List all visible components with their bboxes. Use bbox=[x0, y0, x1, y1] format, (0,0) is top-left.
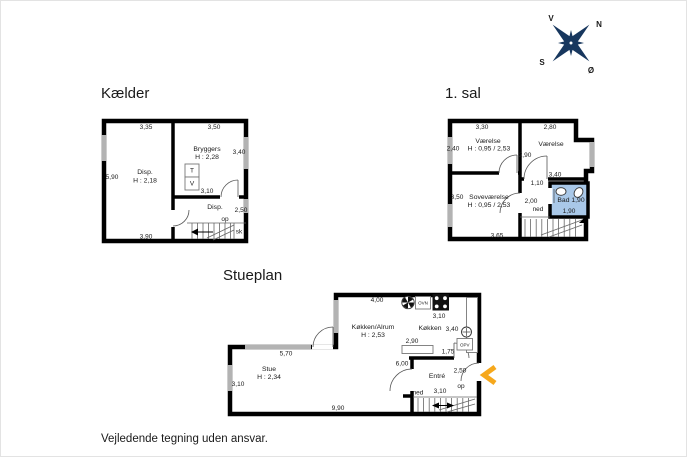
dim-label: 2,90 bbox=[406, 338, 419, 345]
extractor-fan-icon bbox=[402, 296, 414, 308]
stairs-down-label: ned bbox=[533, 206, 544, 213]
room-height-label: H : 0,95 / 2,53 bbox=[468, 202, 511, 209]
dim-label: 2,90 bbox=[519, 152, 532, 159]
dim-label: 1,10 bbox=[531, 180, 544, 187]
window bbox=[334, 300, 339, 333]
door-opening bbox=[547, 188, 552, 204]
compass-north-label: N bbox=[596, 20, 602, 29]
door-swing bbox=[313, 327, 333, 347]
compass-rose: V N S Ø bbox=[539, 14, 602, 75]
dim-label: 2,40 bbox=[447, 146, 460, 153]
door-opening bbox=[516, 193, 524, 213]
door-opening bbox=[312, 345, 333, 350]
dim-label: 3,40 bbox=[549, 172, 562, 179]
dim-label: 2,00 bbox=[525, 198, 538, 205]
door-opening bbox=[220, 193, 239, 201]
dim-label: 3,50 bbox=[451, 194, 464, 201]
dishwasher-label: OPV bbox=[460, 343, 470, 348]
room-label: Bad 1,90 bbox=[557, 197, 584, 204]
dim-label: 5,90 bbox=[106, 174, 119, 181]
closet-label: sk bbox=[236, 229, 243, 236]
door-opening bbox=[499, 169, 518, 177]
basement-plan: Kælder T V bbox=[101, 85, 248, 241]
compass-south-label: S bbox=[539, 58, 545, 67]
stairs-up-label: op bbox=[221, 216, 229, 223]
stairs-down-label: ned bbox=[413, 390, 424, 397]
room-label: Værelse bbox=[475, 138, 501, 145]
dim-label: 2,50 bbox=[454, 368, 467, 375]
floorplan-canvas: V N S Ø Kælder T V bbox=[1, 1, 687, 457]
ground-floor-plan: Stueplan bbox=[223, 267, 495, 414]
entrance-arrow-icon bbox=[484, 367, 495, 383]
room-label: Køkken/Alrum bbox=[352, 324, 395, 331]
dim-label: 3,40 bbox=[233, 149, 246, 156]
room-height-label: H : 2,34 bbox=[257, 374, 281, 381]
dim-label: 3,40 bbox=[446, 326, 459, 333]
compass-east-label: Ø bbox=[588, 66, 594, 75]
room-label: Køkken bbox=[418, 325, 441, 332]
dim-label: 9,90 bbox=[332, 405, 345, 412]
floorplan-page: V N S Ø Kælder T V bbox=[0, 0, 687, 457]
disclaimer-text: Vejledende tegning uden ansvar. bbox=[101, 433, 268, 445]
room-label: Stue bbox=[262, 366, 276, 373]
dim-label: 3,10 bbox=[232, 381, 245, 388]
first-floor-title: 1. sal bbox=[445, 85, 481, 102]
basement-title: Kælder bbox=[101, 85, 149, 102]
dim-label: 4,00 bbox=[371, 297, 384, 304]
compass-west-label: V bbox=[548, 14, 554, 23]
door-opening bbox=[408, 369, 416, 391]
kitchen-island bbox=[402, 346, 433, 354]
dim-label: 6,00 bbox=[396, 361, 409, 368]
window bbox=[245, 345, 311, 350]
dim-label: 3,10 bbox=[201, 188, 214, 195]
door-opening bbox=[475, 363, 483, 381]
dim-label: 5,70 bbox=[280, 351, 293, 358]
window bbox=[102, 135, 107, 161]
washbasin-icon bbox=[462, 327, 472, 337]
room-height-label: H : 0,95 / 2,53 bbox=[468, 146, 511, 153]
room-label: Entré bbox=[429, 373, 445, 380]
room-label: Soveværelse bbox=[469, 194, 509, 201]
ground-floor-title: Stueplan bbox=[223, 267, 282, 284]
sink-icon bbox=[556, 188, 566, 196]
dim-label: 3,10 bbox=[434, 388, 447, 395]
dim-label: 1,75 bbox=[442, 349, 455, 356]
dim-label: 3,90 bbox=[140, 234, 153, 241]
window bbox=[448, 204, 453, 227]
room-height-label: H : 2,18 bbox=[133, 178, 157, 185]
room-label: Bryggers bbox=[193, 146, 221, 153]
dim-label: 3,30 bbox=[476, 124, 489, 131]
door-opening bbox=[169, 210, 177, 227]
room-label: Disp. bbox=[137, 169, 153, 176]
window bbox=[590, 142, 595, 167]
first-floor-plan: 1. sal bbox=[445, 85, 594, 240]
dim-label: 3,35 bbox=[140, 124, 153, 131]
stairs-up-label: op bbox=[457, 383, 465, 390]
dim-label: 1,90 bbox=[563, 208, 576, 215]
oven-label: OVN bbox=[418, 301, 428, 306]
dim-label: 3,65 bbox=[491, 233, 504, 240]
room-height-label: H : 2,53 bbox=[361, 332, 385, 339]
room-height-label: H : 2,28 bbox=[195, 154, 219, 161]
room-label: Disp. bbox=[207, 204, 223, 211]
dim-label: 2,80 bbox=[544, 124, 557, 131]
room-label: Værelse bbox=[538, 141, 564, 148]
dryer-label: T bbox=[190, 168, 194, 175]
washer-label: V bbox=[190, 181, 195, 188]
dim-label: 2,50 bbox=[235, 207, 248, 214]
dim-label: 3,10 bbox=[433, 313, 446, 320]
dim-label: 3,50 bbox=[208, 124, 221, 131]
cooktop-icon bbox=[433, 294, 450, 311]
